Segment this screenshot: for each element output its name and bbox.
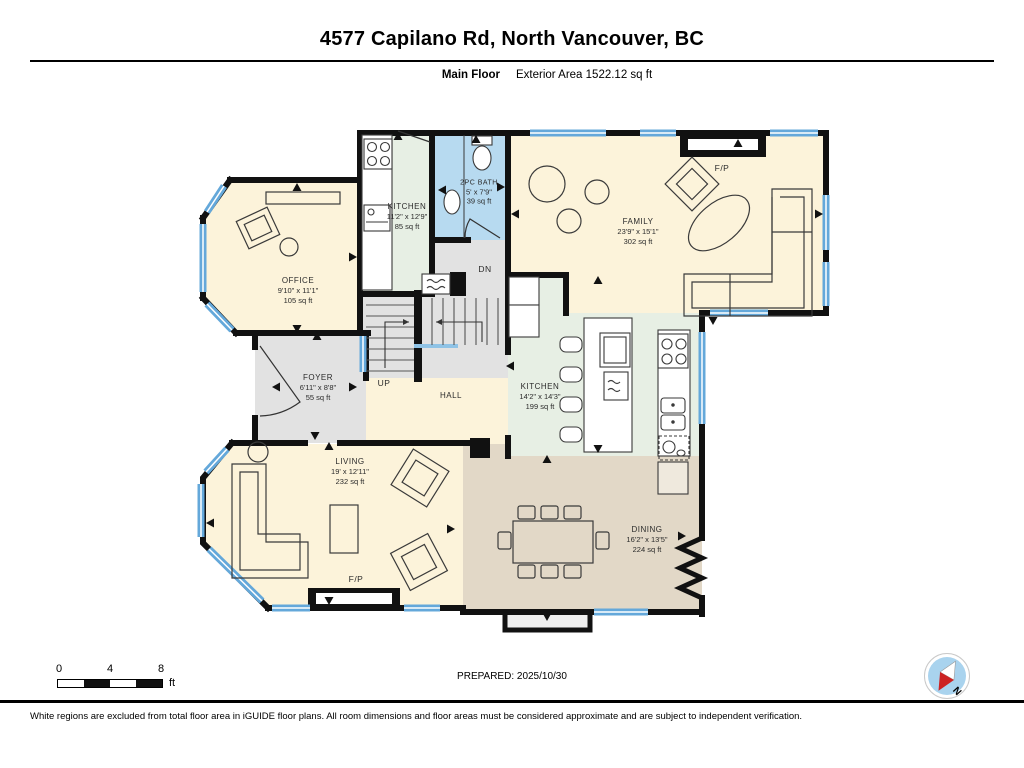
room-fills bbox=[203, 133, 826, 628]
fireplace-family bbox=[680, 133, 766, 157]
heater bbox=[422, 274, 450, 294]
room-label-dining: DINING 16'2" x 13'5" 224 sq ft bbox=[626, 525, 667, 555]
fireplace-family-label: F/P bbox=[715, 163, 730, 173]
room-label-kitchen-main: KITCHEN 14'2" x 14'3" 199 sq ft bbox=[519, 382, 560, 412]
oven bbox=[604, 372, 628, 400]
floorplan-page: 4577 Capilano Rd, North Vancouver, BC Ma… bbox=[0, 0, 1024, 768]
room-label-living: LIVING 19' x 12'11" 232 sq ft bbox=[331, 457, 369, 487]
counter bbox=[658, 330, 690, 456]
room-label-hall: HALL bbox=[440, 391, 462, 401]
fireplace-living bbox=[308, 588, 400, 610]
room-label-bath: 2PC BATH 5' x 7'9" 39 sq ft bbox=[460, 179, 498, 206]
prepared-date: PREPARED: 2025/10/30 bbox=[0, 671, 1024, 682]
stairs-up-label: UP bbox=[378, 378, 391, 388]
room-label-family: FAMILY 23'9" x 15'1" 302 sq ft bbox=[617, 217, 658, 247]
disclaimer-text: White regions are excluded from total fl… bbox=[30, 711, 994, 722]
fridge bbox=[509, 277, 539, 305]
room-label-office: OFFICE 9'10" x 11'1" 105 sq ft bbox=[278, 276, 319, 306]
stairs-down-label: DN bbox=[478, 264, 491, 274]
floor-plan-drawing bbox=[0, 0, 1024, 768]
footer-divider bbox=[0, 700, 1024, 703]
fireplace-living-label: F/P bbox=[349, 574, 364, 584]
room-label-kitchen-small: KITCHEN 11'2" x 12'9" 85 sq ft bbox=[387, 202, 428, 232]
dining-closet bbox=[658, 462, 688, 494]
room-label-foyer: FOYER 6'11" x 8'8" 55 sq ft bbox=[300, 373, 336, 403]
